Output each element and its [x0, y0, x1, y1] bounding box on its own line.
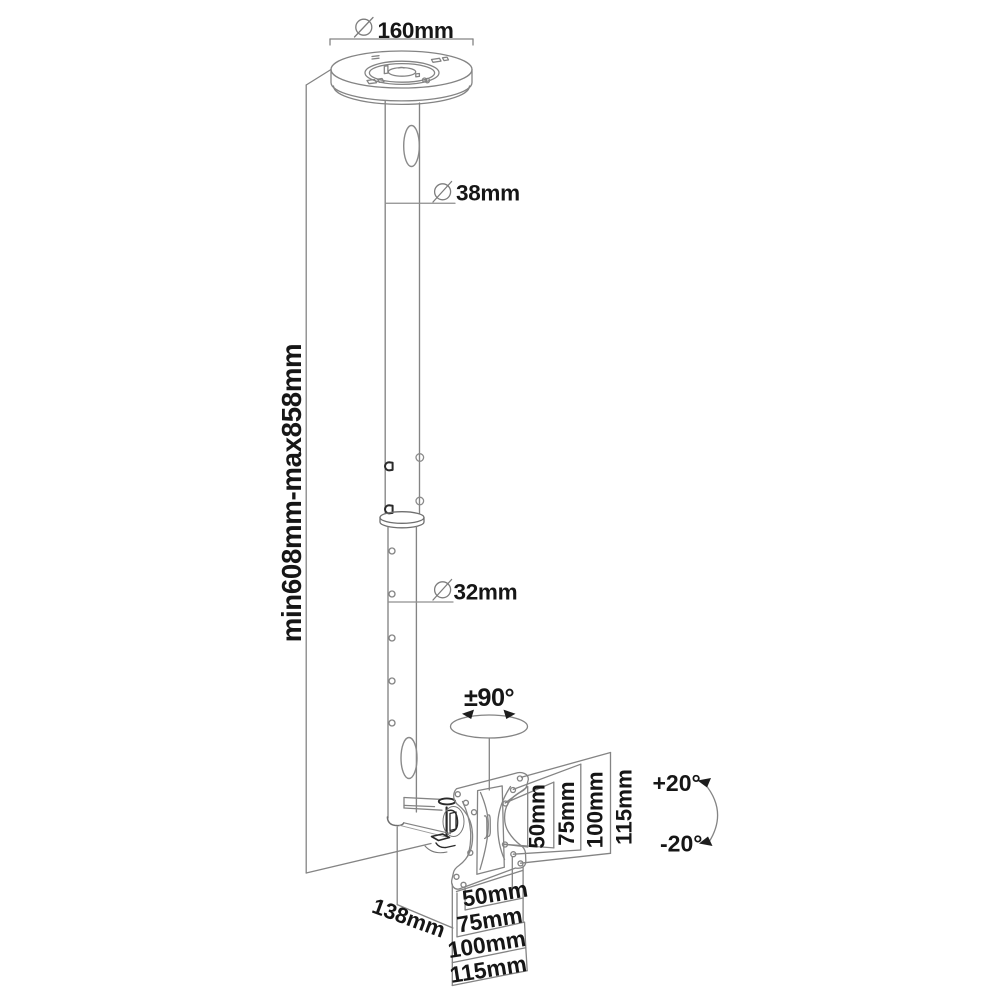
svg-text:-20°: -20° [660, 831, 702, 857]
svg-text:min608mm-max858mm: min608mm-max858mm [276, 344, 307, 643]
svg-text:75mm: 75mm [554, 781, 579, 845]
svg-text:115mm: 115mm [612, 769, 637, 845]
svg-text:38mm: 38mm [456, 181, 520, 206]
svg-text:50mm: 50mm [525, 784, 550, 848]
svg-text:160mm: 160mm [378, 18, 454, 43]
svg-text:100mm: 100mm [582, 771, 607, 848]
svg-text:+20°: +20° [653, 770, 701, 796]
svg-text:±90°: ±90° [464, 684, 515, 712]
svg-text:32mm: 32mm [454, 580, 518, 605]
svg-text:138mm: 138mm [369, 893, 449, 942]
